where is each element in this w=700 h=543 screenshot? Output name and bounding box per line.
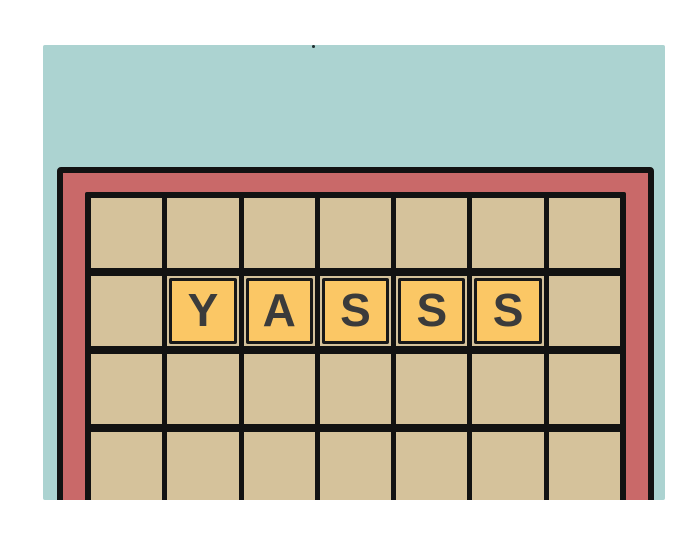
wall-background: YASSS bbox=[43, 45, 665, 500]
board-cell[interactable] bbox=[549, 432, 620, 500]
board-grid: YASSS bbox=[85, 192, 626, 500]
board-cell[interactable] bbox=[91, 432, 162, 500]
letter-tile[interactable]: A bbox=[246, 278, 313, 344]
illustration-canvas: YASSS bbox=[0, 0, 700, 543]
scrabble-board: YASSS bbox=[57, 167, 654, 500]
board-cell[interactable] bbox=[549, 276, 620, 346]
board-cell[interactable] bbox=[396, 432, 467, 500]
board-cell[interactable] bbox=[91, 354, 162, 424]
tile-letter: A bbox=[263, 287, 296, 333]
board-cell[interactable] bbox=[320, 432, 391, 500]
board-cell[interactable]: S bbox=[320, 276, 391, 346]
board-cell[interactable]: Y bbox=[167, 276, 238, 346]
board-cell[interactable] bbox=[472, 354, 543, 424]
board-cell[interactable] bbox=[472, 432, 543, 500]
tile-letter: S bbox=[416, 287, 447, 333]
letter-tile[interactable]: Y bbox=[169, 278, 236, 344]
board-cell[interactable]: S bbox=[472, 276, 543, 346]
board-cell[interactable]: A bbox=[244, 276, 315, 346]
board-cell[interactable] bbox=[396, 198, 467, 268]
board-cell[interactable] bbox=[167, 432, 238, 500]
board-cell[interactable] bbox=[91, 276, 162, 346]
tile-letter: S bbox=[493, 287, 524, 333]
board-cell[interactable] bbox=[244, 432, 315, 500]
tile-letter: S bbox=[340, 287, 371, 333]
board-cell[interactable] bbox=[244, 198, 315, 268]
board-cell[interactable] bbox=[472, 198, 543, 268]
board-cell[interactable] bbox=[91, 198, 162, 268]
letter-tile[interactable]: S bbox=[398, 278, 465, 344]
board-cell[interactable] bbox=[549, 354, 620, 424]
wall-speck bbox=[312, 45, 315, 48]
board-cell[interactable] bbox=[549, 198, 620, 268]
board-cell[interactable] bbox=[167, 198, 238, 268]
board-cell[interactable]: S bbox=[396, 276, 467, 346]
board-cell[interactable] bbox=[396, 354, 467, 424]
letter-tile[interactable]: S bbox=[322, 278, 389, 344]
board-cell[interactable] bbox=[167, 354, 238, 424]
letter-tile[interactable]: S bbox=[474, 278, 541, 344]
tile-letter: Y bbox=[188, 287, 219, 333]
board-cell[interactable] bbox=[320, 354, 391, 424]
board-cell[interactable] bbox=[244, 354, 315, 424]
board-cell[interactable] bbox=[320, 198, 391, 268]
